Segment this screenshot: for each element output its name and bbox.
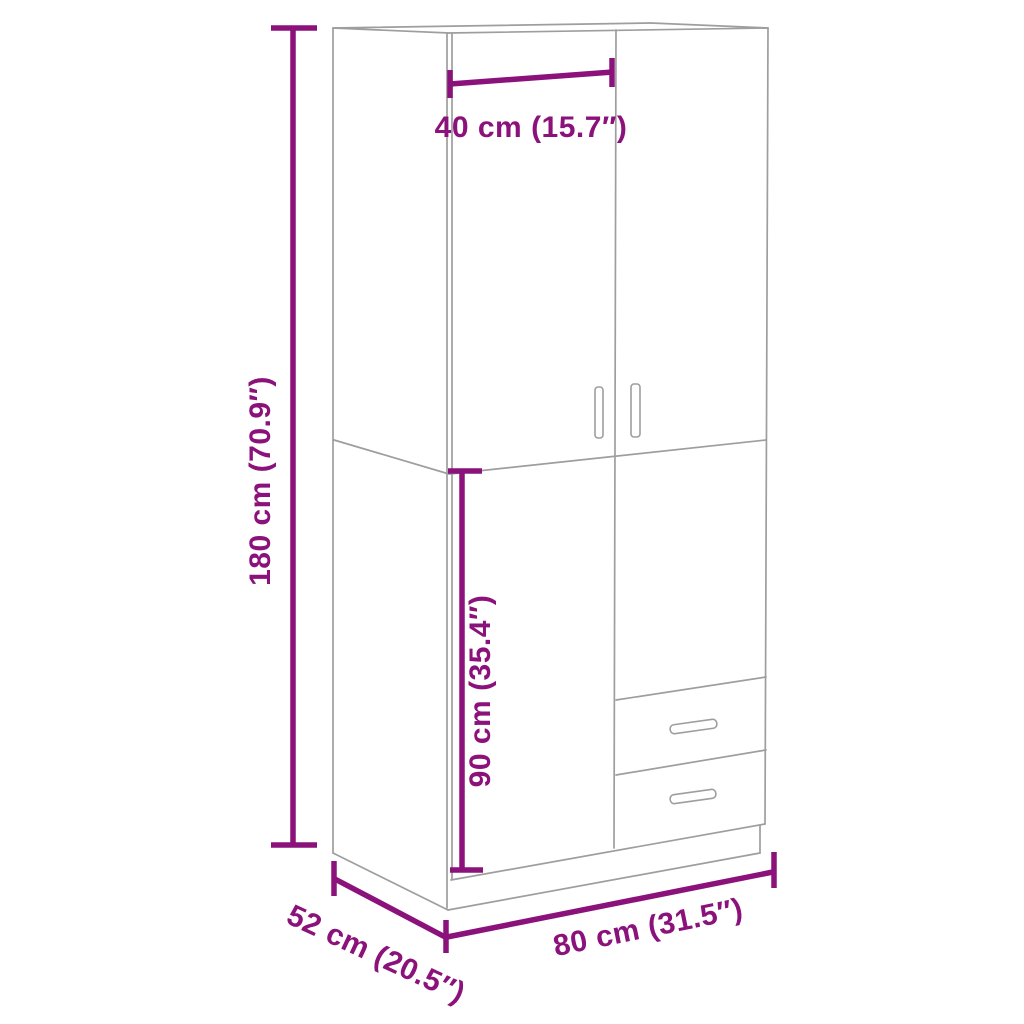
- diagram-stage: 180 cm (70.9″) 40 cm (15.7″) 90 cm (35.4…: [0, 0, 1024, 1024]
- drawer-divider-line: [616, 750, 766, 775]
- dimension-door-width: 40 cm (15.7″): [435, 58, 628, 144]
- top-back-edge: [333, 23, 651, 28]
- dimension-height: 180 cm (70.9″): [244, 28, 317, 845]
- drawer-top-line: [616, 677, 766, 700]
- dimension-depth: 52 cm (20.5″): [282, 861, 471, 1010]
- width-dimension-label: 80 cm (31.5″): [550, 892, 745, 963]
- front-right-edge: [765, 28, 768, 824]
- height-dimension-label: 180 cm (70.9″): [244, 376, 277, 586]
- depth-dimension-label: 52 cm (20.5″): [282, 899, 471, 1010]
- top-drawer-handle: [670, 719, 718, 734]
- front-top-edge: [449, 28, 768, 33]
- right-door-handle: [631, 384, 640, 437]
- side-bottom-edge: [333, 853, 448, 910]
- top-right-edge: [651, 23, 768, 28]
- dimension-width: 80 cm (31.5″): [447, 852, 774, 963]
- front-divider-line: [450, 440, 766, 474]
- door-width-dimension-line: [450, 72, 613, 84]
- wardrobe-outline: [333, 23, 768, 910]
- side-top-edge: [333, 28, 449, 33]
- door-split-line: [614, 30, 616, 848]
- bottom-drawer-handle: [670, 789, 717, 804]
- left-door-handle: [595, 387, 603, 438]
- side-divider-line: [334, 440, 449, 474]
- dimension-lower-section-height: 90 cm (35.4″): [448, 471, 497, 871]
- door-width-dimension-label: 40 cm (15.7″): [435, 111, 628, 144]
- front-bottom-edge: [451, 824, 765, 880]
- wardrobe-dimension-diagram: 180 cm (70.9″) 40 cm (15.7″) 90 cm (35.4…: [0, 0, 1024, 1024]
- lower-height-dimension-label: 90 cm (35.4″): [464, 595, 497, 788]
